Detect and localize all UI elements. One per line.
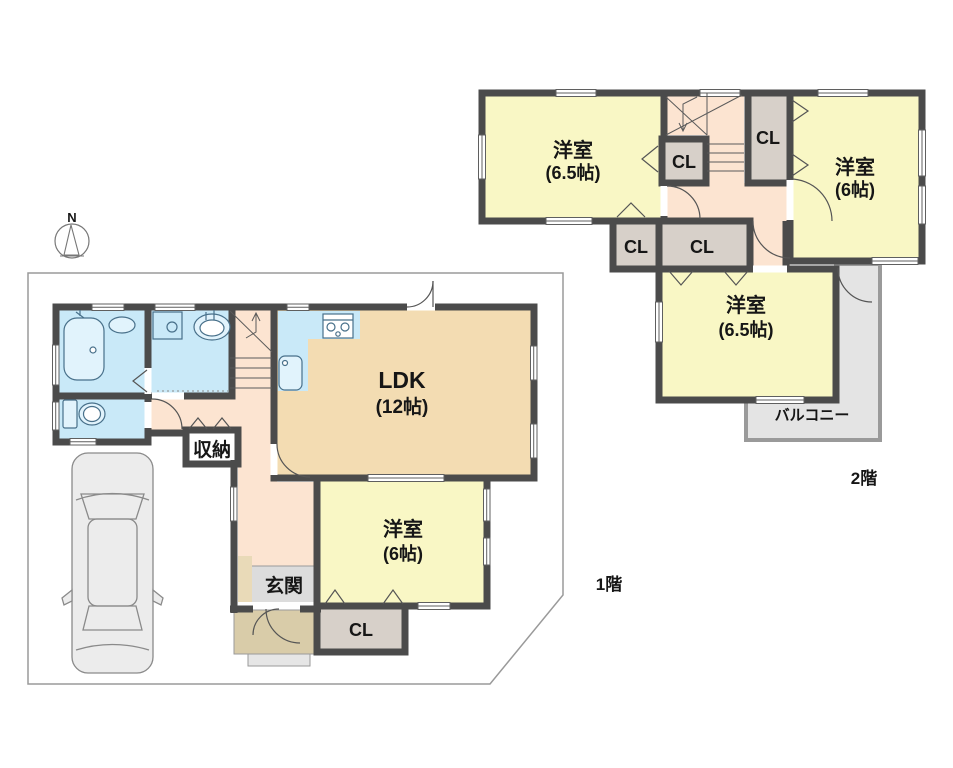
entrance-label: 玄関 xyxy=(265,574,303,597)
room-2f-south-label: 洋室 xyxy=(726,293,766,317)
room-1f-bedroom-size: (6帖) xyxy=(383,543,423,564)
floorplan-canvas: 洋室 (6.5帖) 洋室 (6帖) 洋室 (6.5帖) CL CL CL CL … xyxy=(0,0,953,768)
kitchen-sink xyxy=(279,356,302,390)
closet-2f-mid-left-label: CL xyxy=(624,237,648,257)
car xyxy=(62,453,163,673)
closet-2f-top-label: CL xyxy=(756,128,780,148)
closet-2f-mid-right-label: CL xyxy=(690,237,714,257)
floor2-label: 2階 xyxy=(851,469,877,488)
closet-2f-inner-label: CL xyxy=(672,152,696,172)
room-2f-northeast-size: (6帖) xyxy=(835,179,875,200)
storage-label: 収納 xyxy=(193,438,231,461)
floorplan-page: 洋室 (6.5帖) 洋室 (6帖) 洋室 (6.5帖) CL CL CL CL … xyxy=(0,0,953,768)
closet-1f-label: CL xyxy=(349,620,373,640)
room-2f-northwest-label: 洋室 xyxy=(553,138,593,162)
porch-step xyxy=(248,654,310,666)
kitchen-stove xyxy=(323,314,353,338)
floor-plan-1f: N LDK (12帖) 洋室 (6帖) 玄関 収納 CL 1階 xyxy=(28,210,622,684)
ldk-size: (12帖) xyxy=(376,395,429,418)
floor1-label: 1階 xyxy=(596,575,622,594)
room-2f-northwest-size: (6.5帖) xyxy=(545,162,600,183)
entrance-side-strip xyxy=(238,556,252,602)
room-2f-northeast-label: 洋室 xyxy=(835,155,875,179)
room-2f-south-size: (6.5帖) xyxy=(718,319,773,340)
ldk-label: LDK xyxy=(378,367,426,393)
room-1f-bedroom-label: 洋室 xyxy=(383,517,423,541)
room-1f-bedroom xyxy=(317,478,487,606)
compass-north-label: N xyxy=(67,210,76,225)
balcony-label: バルコニー xyxy=(775,407,850,424)
compass-icon: N xyxy=(55,210,89,258)
